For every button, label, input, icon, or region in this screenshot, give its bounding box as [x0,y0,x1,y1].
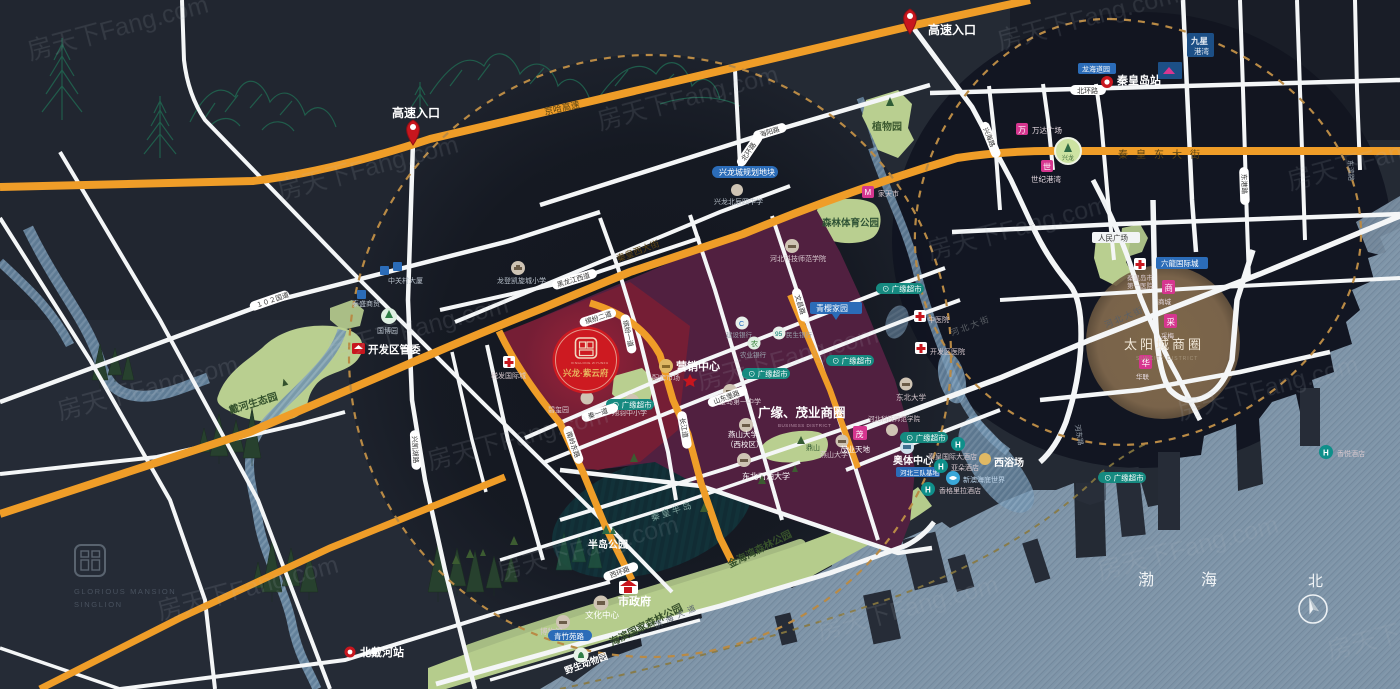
svg-text:C: C [739,321,744,328]
svg-text:中医院: 中医院 [928,315,949,324]
svg-text:BUSINESS DISTRICT: BUSINESS DISTRICT [778,423,831,428]
svg-text:北环路: 北环路 [1077,86,1098,95]
svg-text:茂: 茂 [856,429,864,439]
svg-text:新澳海底世界: 新澳海底世界 [963,475,1005,484]
svg-text:H: H [925,486,931,495]
svg-text:世纪港湾: 世纪港湾 [1031,174,1061,184]
svg-text:龙登凯旋城小学: 龙登凯旋城小学 [497,276,546,285]
svg-text:⊙ 广缘超市: ⊙ 广缘超市 [882,284,922,294]
svg-text:SINGLION: SINGLION [74,600,123,609]
svg-text:兴龙北辰四中学: 兴龙北辰四中学 [714,197,763,206]
svg-text:河北三队基地: 河北三队基地 [900,468,940,477]
svg-text:青樱家园: 青樱家园 [816,303,848,313]
svg-text:M: M [865,188,872,197]
svg-text:第一医院: 第一医院 [1127,281,1154,290]
svg-text:GLORIOUS MANSION: GLORIOUS MANSION [74,587,176,596]
svg-text:H: H [938,463,944,472]
svg-text:⊙ 广缘超市: ⊙ 广缘超市 [1104,473,1144,483]
svg-text:农: 农 [751,339,758,348]
svg-text:采: 采 [1167,317,1176,327]
svg-text:文化中心: 文化中心 [585,610,620,620]
svg-text:人民广场: 人民广场 [1098,233,1128,243]
svg-text:香格里拉酒店: 香格里拉酒店 [939,486,981,495]
svg-text:鼎山: 鼎山 [806,443,820,452]
svg-text:北戴河站: 北戴河站 [360,645,404,659]
svg-text:茂业天地: 茂业天地 [840,444,870,454]
svg-text:税发国际城: 税发国际城 [491,371,526,380]
svg-text:太阳城商圈: 太阳城商圈 [1124,337,1204,352]
svg-text:兴龙: 兴龙 [1062,154,1074,162]
svg-text:高速入口: 高速入口 [392,105,440,120]
svg-text:广缘、茂业商圈: 广缘、茂业商圈 [758,405,846,420]
svg-text:渤海: 渤海 [1138,571,1264,589]
svg-text:商城: 商城 [1158,297,1172,306]
svg-text:泰盛商贸: 泰盛商贸 [352,299,380,308]
svg-text:世: 世 [1043,162,1051,172]
svg-text:河北科技师范学院: 河北科技师范学院 [770,254,826,263]
svg-text:秦皇国际大酒店: 秦皇国际大酒店 [928,452,977,461]
svg-text:东北石油大学: 东北石油大学 [742,471,790,481]
svg-text:秦皇东大街: 秦皇东大街 [1118,148,1208,161]
svg-text:（西校区）: （西校区） [726,439,764,449]
svg-text:兴龙城规划地块: 兴龙城规划地块 [719,167,775,177]
svg-text:H: H [1323,449,1329,458]
svg-text:高速入口: 高速入口 [928,22,976,37]
svg-text:植物园: 植物园 [871,120,902,133]
svg-text:九星: 九星 [1190,36,1209,46]
svg-text:95: 95 [775,331,783,338]
svg-text:建设银行: 建设银行 [726,330,753,339]
svg-text:家天市: 家天市 [878,189,899,198]
svg-text:西浴场: 西浴场 [994,456,1024,469]
svg-text:⊙ 广缘超市: ⊙ 广缘超市 [906,433,946,443]
svg-text:河北科技师范学院: 河北科技师范学院 [868,414,921,423]
svg-text:XINGLONG ZIYUNFU: XINGLONG ZIYUNFU [571,361,609,365]
svg-text:东北大学: 东北大学 [896,392,926,402]
svg-text:商: 商 [1165,283,1174,293]
svg-text:森林体育公园: 森林体育公园 [822,217,879,229]
svg-text:兴龙·紫云府: 兴龙·紫云府 [563,368,609,378]
svg-text:秦皇岛站: 秦皇岛站 [1116,73,1161,87]
svg-text:北: 北 [1308,573,1323,590]
svg-text:龙海道园: 龙海道园 [1082,65,1110,74]
svg-text:青竹苑路: 青竹苑路 [554,631,584,641]
svg-text:燕山大学: 燕山大学 [728,429,758,439]
svg-text:开发区医院: 开发区医院 [930,347,965,356]
svg-text:六龍国际城: 六龍国际城 [1161,258,1199,268]
svg-text:华联: 华联 [1136,372,1150,381]
svg-text:香悦酒店: 香悦酒店 [1337,449,1365,458]
svg-text:中关村大厦: 中关村大厦 [388,276,423,285]
svg-text:配套市场: 配套市场 [652,373,680,382]
svg-text:H: H [955,441,961,450]
svg-text:秦皇岛市: 秦皇岛市 [1127,273,1154,282]
svg-text:万达广场: 万达广场 [1032,125,1062,135]
svg-text:奥体中心: 奥体中心 [893,454,933,467]
svg-text:SUNCITY DISTRICT: SUNCITY DISTRICT [1136,356,1198,362]
svg-text:亚朵酒店: 亚朵酒店 [951,463,979,472]
svg-text:万: 万 [1018,126,1026,135]
svg-text:港湾: 港湾 [1194,46,1210,56]
svg-text:市政府: 市政府 [618,594,651,608]
